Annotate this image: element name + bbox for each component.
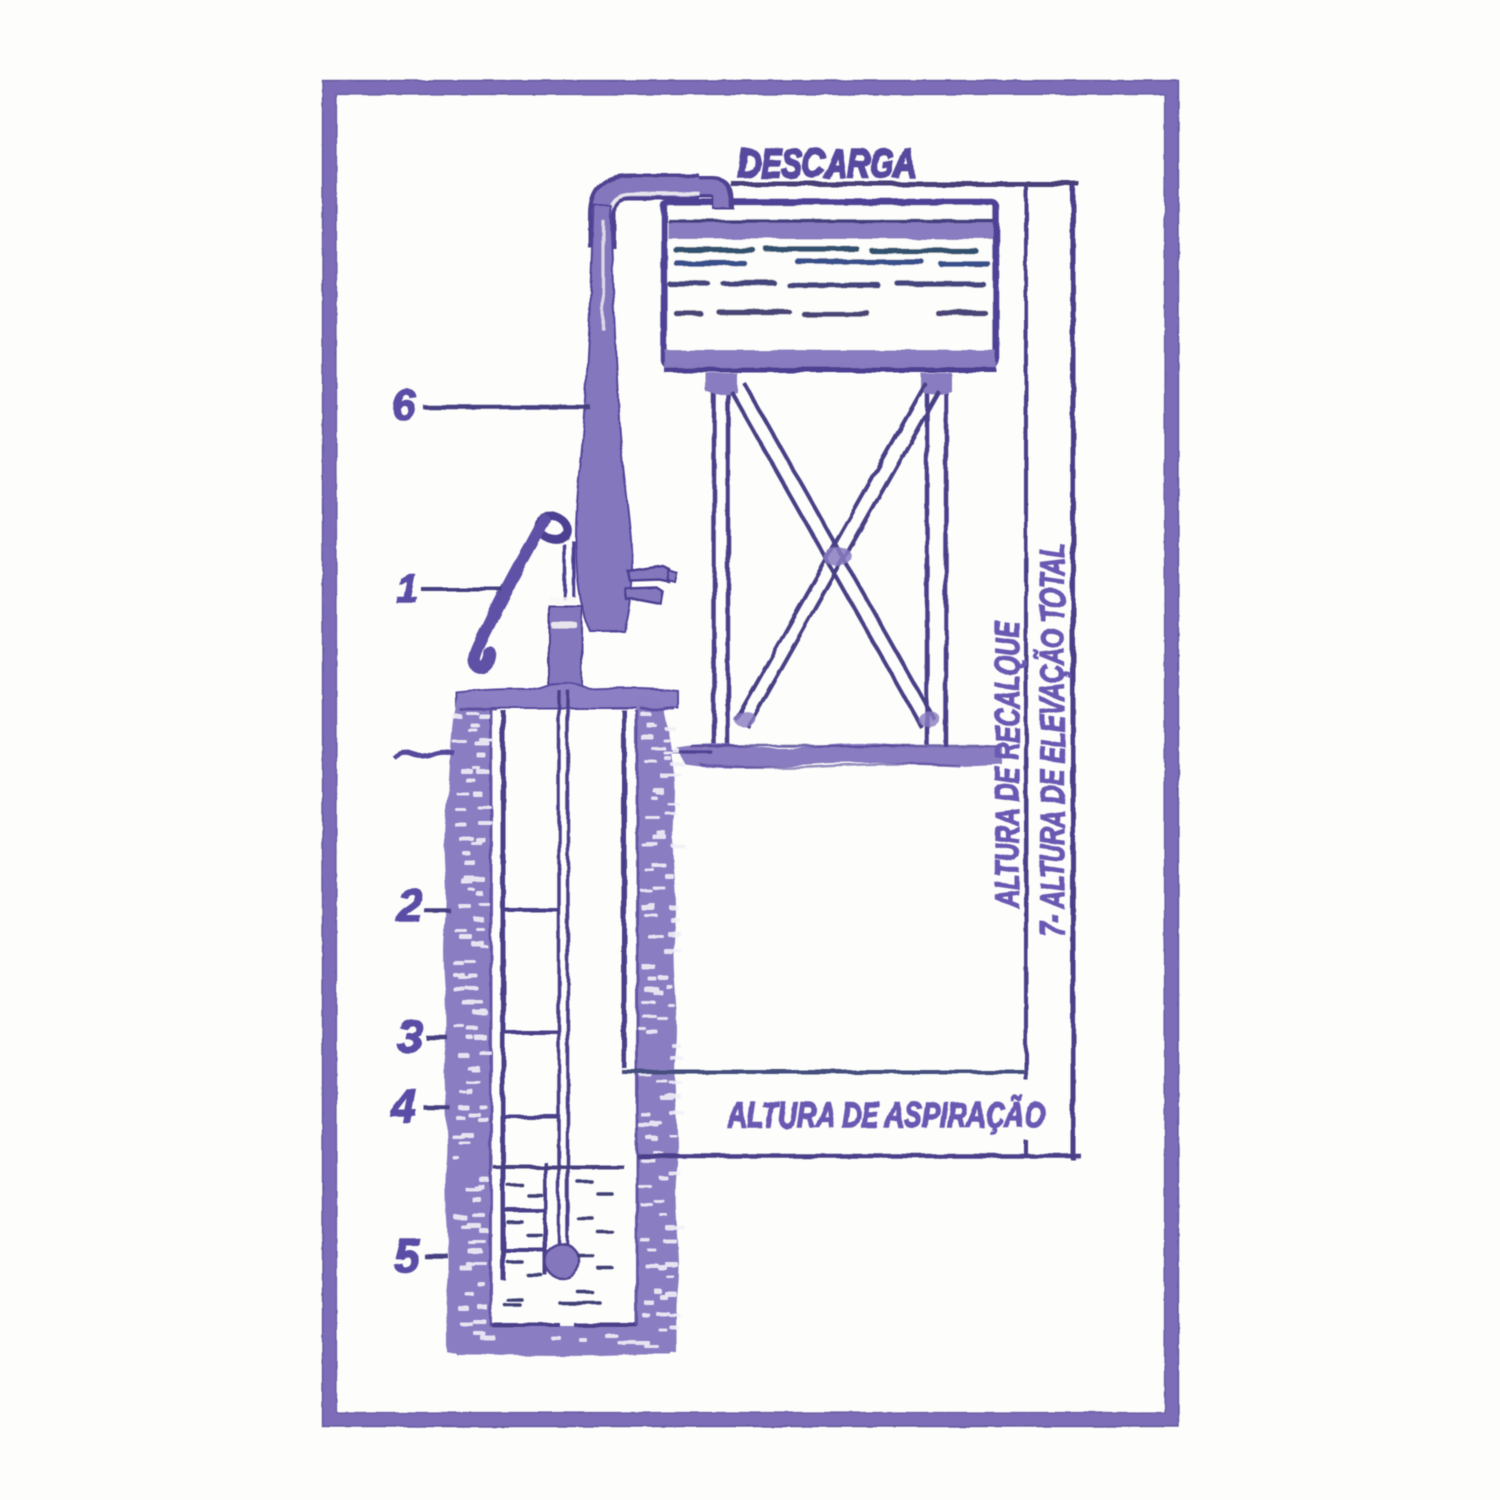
svg-text:2: 2 <box>396 879 423 931</box>
svg-text:DESCARGA: DESCARGA <box>738 141 916 186</box>
svg-text:7- ALTURA DE ELEVAÇÃO TOTAL: 7- ALTURA DE ELEVAÇÃO TOTAL <box>1033 543 1072 936</box>
svg-text:ALTURA DE RECALQUE: ALTURA DE RECALQUE <box>989 620 1027 908</box>
svg-text:5: 5 <box>394 1230 421 1282</box>
svg-text:ALTURA DE ASPIRAÇÃO: ALTURA DE ASPIRAÇÃO <box>727 1095 1045 1134</box>
svg-text:4: 4 <box>390 1080 417 1132</box>
svg-text:6: 6 <box>392 381 416 428</box>
svg-text:1: 1 <box>396 567 418 611</box>
svg-text:3: 3 <box>397 1010 423 1062</box>
